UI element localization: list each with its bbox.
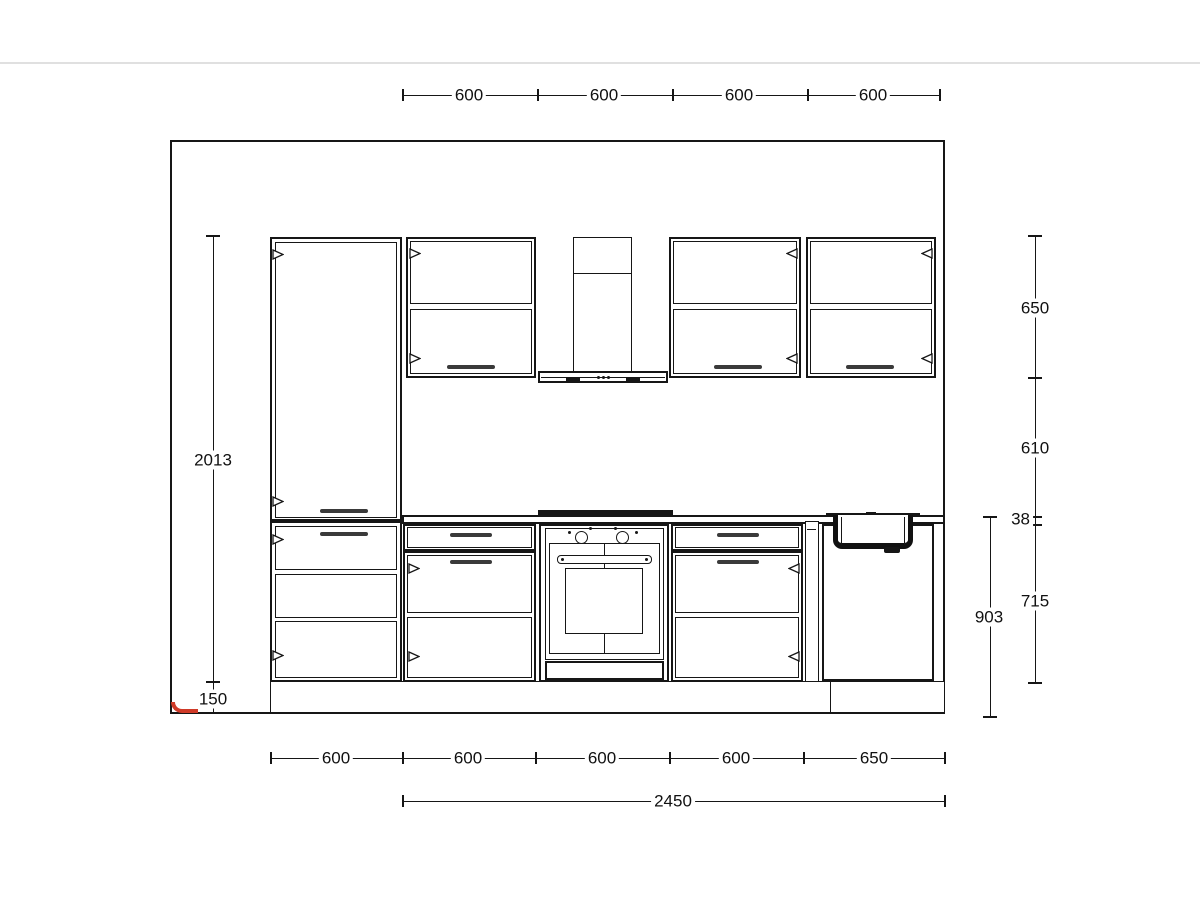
dim-tick: [206, 681, 220, 683]
hood-control-dot: [602, 376, 605, 379]
sink-bowl-hatch: [904, 517, 905, 545]
dim-label-worktop-thickness: 38: [1008, 510, 1033, 529]
plinth-divider: [830, 681, 831, 713]
plinth: [270, 681, 945, 713]
base-cabinet-4-divider: [673, 549, 801, 553]
tall-unit-drawer-2: [275, 574, 397, 618]
wall-cabinet-1-handle: [447, 365, 495, 369]
hood-chimney: [573, 237, 632, 372]
dim-label-bottom-1: 600: [319, 749, 353, 768]
hinge-arrow-icon: [409, 248, 421, 259]
hinge-arrow-icon: [408, 563, 420, 574]
dim-tick: [807, 89, 809, 101]
hinge-arrow-icon: [272, 496, 284, 507]
wall-cabinet-3-top-door: [810, 241, 932, 304]
dim-label-bottom-5: 650: [857, 749, 891, 768]
cooktop: [538, 510, 673, 516]
viewport-edge-line: [0, 62, 1200, 64]
knob-marker-dot: [614, 527, 617, 530]
sink-drain: [884, 547, 900, 553]
hinge-arrow-icon: [272, 650, 284, 661]
dim-label-bottom-3: 600: [585, 749, 619, 768]
wall-cabinet-2-top-door: [673, 241, 797, 304]
dim-label-top-4: 600: [856, 86, 890, 105]
oven-handle-bar: [557, 555, 652, 564]
dim-tick: [669, 752, 671, 764]
base-cabinet-4-front-3: [675, 617, 799, 678]
end-panel-bracket: [807, 529, 816, 530]
dim-tick: [402, 795, 404, 807]
tall-unit-door: [275, 242, 397, 518]
dim-tick: [939, 89, 941, 101]
hinge-arrow-icon: [788, 651, 800, 662]
dim-tick: [944, 752, 946, 764]
wall-cabinet-2-handle: [714, 365, 762, 369]
base-cabinet-4-front-handle: [717, 560, 759, 564]
dim-label-plinth: 150: [196, 690, 230, 709]
dim-label-splashback: 610: [1018, 439, 1052, 458]
knob-marker-dot: [568, 531, 571, 534]
dim-tick: [206, 712, 220, 714]
sink-bowl-hatch: [841, 517, 842, 545]
base-cabinet-4-drawer-handle: [717, 533, 759, 537]
base-cabinet-1-front-handle: [450, 560, 492, 564]
dim-tick: [206, 235, 220, 237]
dim-tick: [535, 752, 537, 764]
hood-control-dot: [597, 376, 600, 379]
hood-light-right: [626, 378, 640, 381]
knob-marker-dot: [589, 527, 592, 530]
base-cabinet-1-front-3: [407, 617, 532, 678]
dim-tick: [402, 89, 404, 101]
hinge-arrow-icon: [921, 248, 933, 259]
oven-handle-screw: [645, 558, 648, 561]
hinge-arrow-icon: [409, 353, 421, 364]
dim-tick: [672, 89, 674, 101]
knob-marker-dot: [635, 531, 638, 534]
dim-tick: [270, 752, 272, 764]
hinge-arrow-icon: [272, 534, 284, 545]
base-cabinet-1-drawer-handle: [450, 533, 492, 537]
hinge-arrow-icon: [921, 353, 933, 364]
dim-label-top-1: 600: [452, 86, 486, 105]
dim-line-left: [213, 236, 214, 713]
oven-bottom-drawer: [545, 661, 664, 680]
dim-tick: [1028, 377, 1042, 379]
hinge-arrow-icon: [272, 249, 284, 260]
hood-light-left: [566, 378, 580, 381]
dim-label-worktop-level: 903: [972, 608, 1006, 627]
dim-tick: [983, 516, 997, 518]
tall-unit-door-handle: [320, 509, 368, 513]
dim-label-top-2: 600: [587, 86, 621, 105]
tall-unit-worktop-line: [272, 519, 400, 523]
tall-unit-drawer-3: [275, 621, 397, 678]
hood-control-dot: [607, 376, 610, 379]
base-cabinet-4-drawer: [675, 527, 799, 548]
hinge-arrow-icon: [786, 353, 798, 364]
dim-tick: [803, 752, 805, 764]
dim-label-bottom-4: 600: [719, 749, 753, 768]
dim-label-total-height: 2013: [191, 451, 235, 470]
dim-tick: [402, 752, 404, 764]
dim-label-overall-width: 2450: [651, 792, 695, 811]
hood-chimney-seam: [574, 273, 631, 274]
base-cabinet-1-drawer: [407, 527, 532, 548]
dim-tick: [1028, 682, 1042, 684]
hinge-arrow-icon: [786, 248, 798, 259]
oven-handle-screw: [561, 558, 564, 561]
dim-label-bottom-2: 600: [451, 749, 485, 768]
hinge-arrow-icon: [408, 651, 420, 662]
dim-label-base-cab-height: 715: [1018, 592, 1052, 611]
sink-bowl: [833, 515, 913, 549]
dim-tick: [537, 89, 539, 101]
hinge-arrow-icon: [788, 563, 800, 574]
drawing-canvas: 600 600 600 600 2013 150 650 610 38 715 …: [0, 0, 1200, 900]
base-cabinet-1-divider: [405, 549, 534, 553]
dim-tick: [1028, 235, 1042, 237]
tall-unit-drawer-handle: [320, 532, 368, 536]
dim-tick: [944, 795, 946, 807]
wall-cabinet-1-top-door: [410, 241, 532, 304]
end-panel: [805, 521, 819, 682]
dim-label-wall-cab-height: 650: [1018, 299, 1052, 318]
wall-cabinet-3-handle: [846, 365, 894, 369]
oven-window: [565, 568, 643, 634]
dim-label-top-3: 600: [722, 86, 756, 105]
dim-tick: [983, 716, 997, 718]
